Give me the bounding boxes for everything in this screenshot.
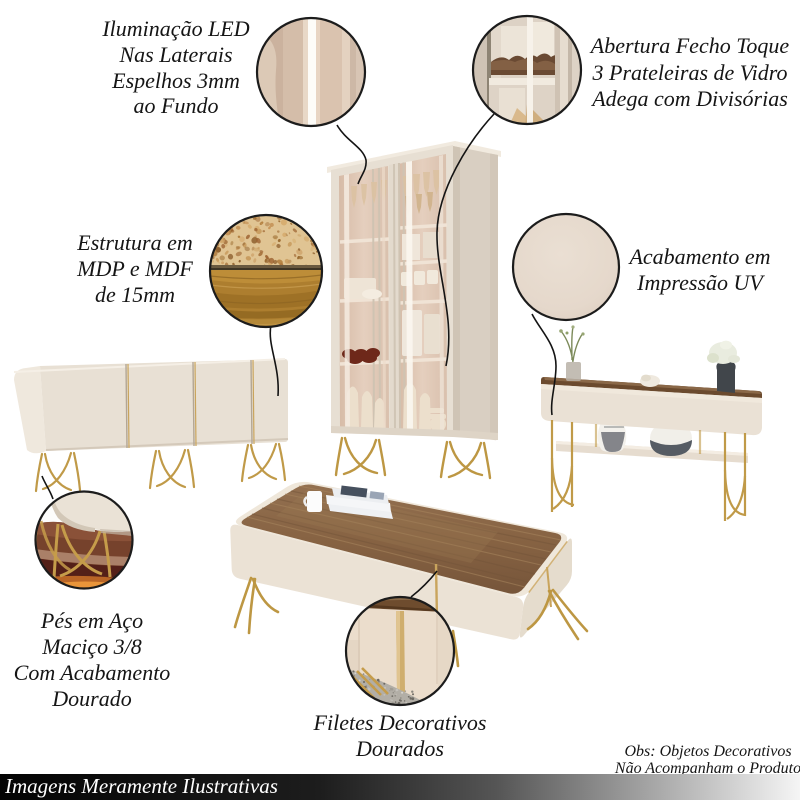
svg-text:Imagens Meramente Ilustrativas: Imagens Meramente Ilustrativas [4, 774, 278, 798]
svg-text:ao Fundo: ao Fundo [134, 93, 219, 118]
svg-text:Pés em Aço: Pés em Aço [40, 608, 143, 633]
svg-text:Maciço 3/8: Maciço 3/8 [41, 634, 142, 659]
svg-text:de 15mm: de 15mm [95, 282, 175, 307]
svg-text:Com Acabamento: Com Acabamento [14, 660, 171, 685]
svg-text:Abertura Fecho Toque: Abertura Fecho Toque [589, 33, 790, 58]
svg-text:Obs: Objetos Decorativos: Obs: Objetos Decorativos [624, 743, 791, 760]
svg-text:Impressão UV: Impressão UV [636, 270, 765, 295]
svg-text:Dourados: Dourados [355, 736, 444, 761]
svg-text:Nas Laterais: Nas Laterais [118, 42, 232, 67]
svg-text:Espelhos 3mm: Espelhos 3mm [111, 68, 240, 93]
svg-text:Adega com Divisórias: Adega com Divisórias [590, 86, 788, 111]
svg-text:3 Prateleiras de Vidro: 3 Prateleiras de Vidro [592, 60, 788, 85]
svg-text:Filetes Decorativos: Filetes Decorativos [313, 710, 487, 735]
svg-text:Acabamento em: Acabamento em [627, 244, 770, 269]
svg-text:Estrutura em: Estrutura em [76, 230, 193, 255]
svg-text:MDP e MDF: MDP e MDF [76, 256, 193, 281]
svg-text:Dourado: Dourado [51, 686, 131, 711]
svg-text:Iluminação LED: Iluminação LED [101, 16, 249, 41]
